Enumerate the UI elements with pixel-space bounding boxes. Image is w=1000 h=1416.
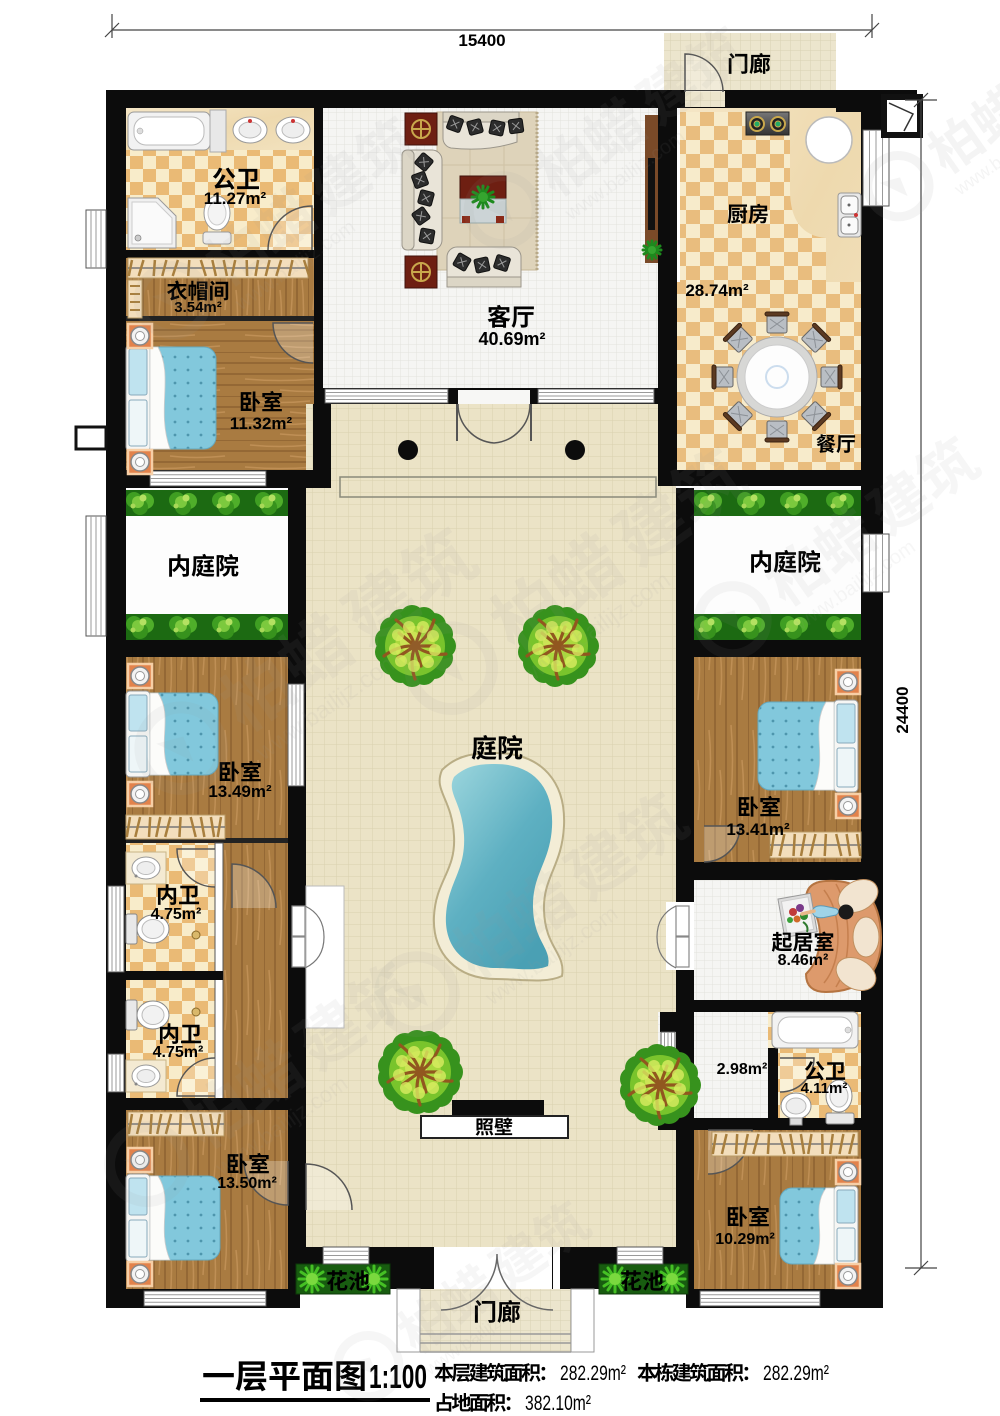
svg-text:8.46m²: 8.46m² [778,952,829,969]
svg-text:4.11m²: 4.11m² [801,1080,848,1097]
svg-text:4.75m²: 4.75m² [153,1044,204,1061]
svg-text:11.27m²: 11.27m² [204,189,267,208]
svg-text:13.41m²: 13.41m² [726,820,790,839]
svg-text:10.29m²: 10.29m² [715,1231,775,1248]
svg-text:4.75m²: 4.75m² [151,906,202,923]
svg-text:282.29m²: 282.29m² [763,1362,829,1385]
svg-text:28.74m²: 28.74m² [685,281,749,300]
svg-text:13.49m²: 13.49m² [208,782,272,801]
svg-text:2.98m²: 2.98m² [717,1061,768,1078]
svg-text:11.32m²: 11.32m² [230,414,293,433]
svg-text:3.54m²: 3.54m² [174,299,222,316]
svg-text:382.10m²: 382.10m² [525,1392,591,1415]
svg-text:15400: 15400 [458,31,505,50]
svg-text:24400: 24400 [893,686,912,733]
svg-text:40.69m²: 40.69m² [478,329,545,349]
svg-text:282.29m²: 282.29m² [560,1362,626,1385]
